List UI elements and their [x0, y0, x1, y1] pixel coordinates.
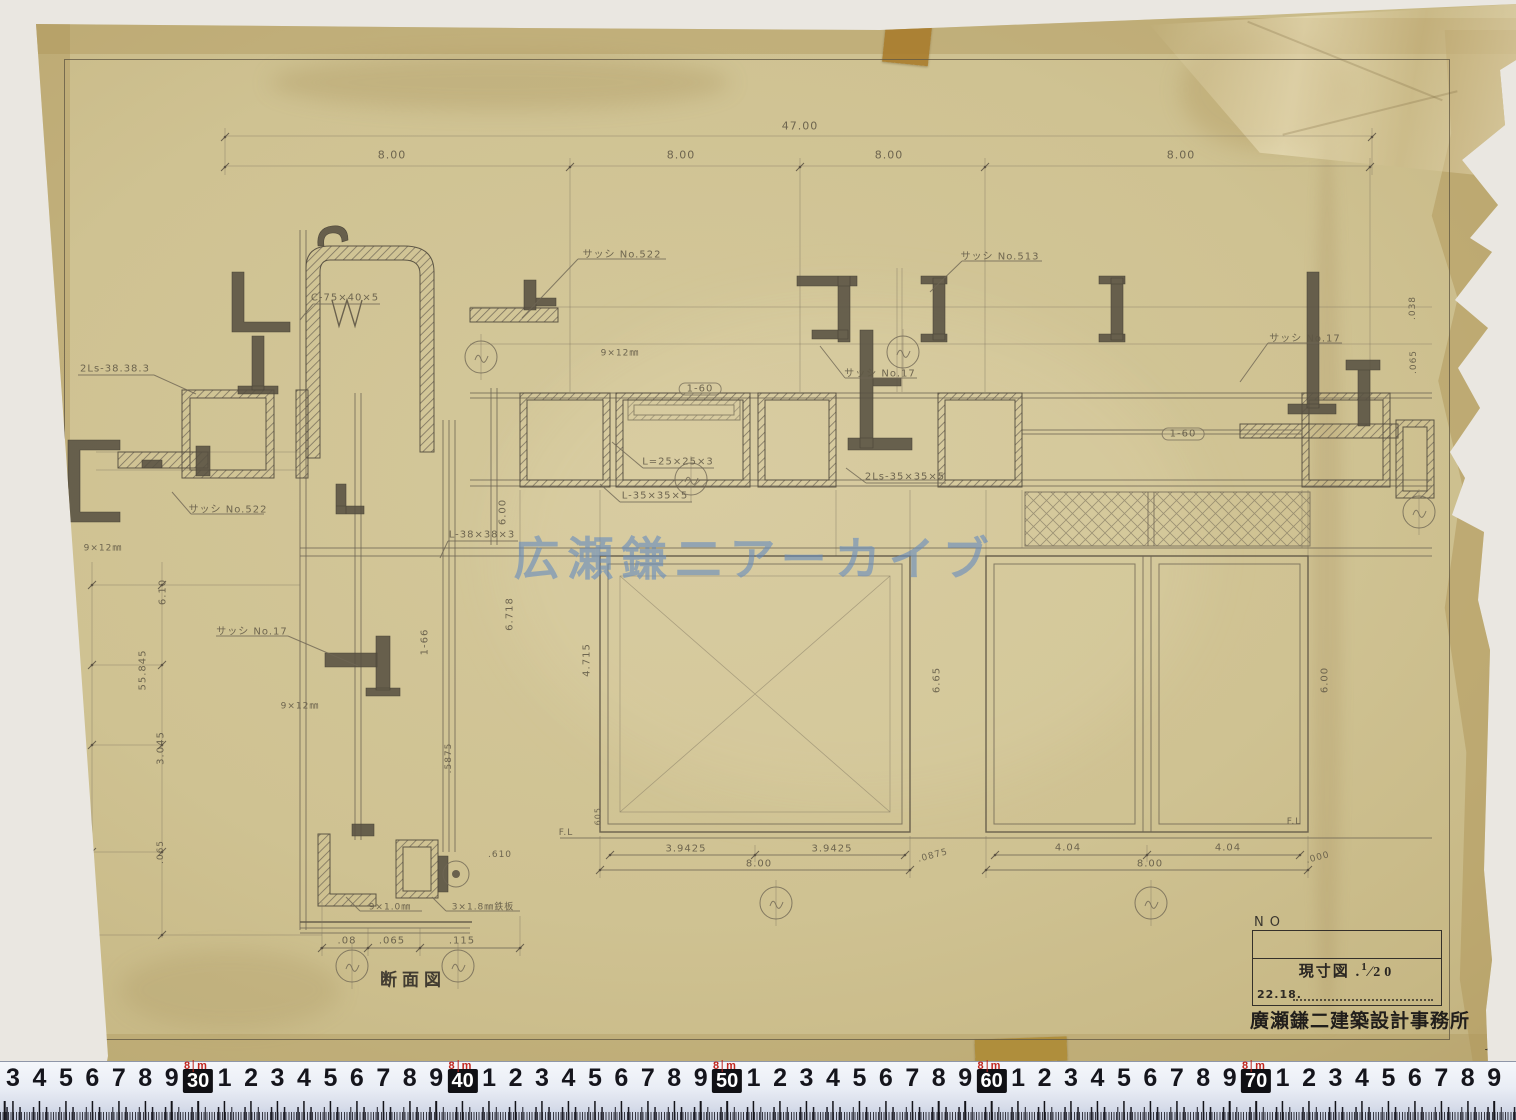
annotation-label: 8.00: [746, 859, 772, 870]
ruler-digit: 2: [773, 1064, 787, 1093]
ruler-meter-label: 8m: [977, 1061, 1000, 1071]
ruler-meter-label: 8m: [184, 1061, 207, 1071]
ruler-digit: 9: [165, 1064, 179, 1093]
crosshatch-screen: [1025, 492, 1310, 546]
section-mark: [465, 334, 497, 380]
ruler-digit: 9: [694, 1064, 708, 1093]
ruler-digit: 1: [218, 1064, 232, 1093]
annotation-label: 47.00: [782, 120, 819, 133]
ruler-digit: 5: [59, 1064, 73, 1093]
ruler-digit: 4: [1090, 1064, 1104, 1093]
ruler-digit: 1: [1276, 1064, 1290, 1093]
title-block: 現寸図 .1⁄20 22.18.: [1252, 930, 1442, 1006]
section-mark: [760, 880, 792, 926]
annotation-label: .5875: [444, 743, 454, 774]
annotation-label: C-75×40×5: [311, 293, 379, 304]
annotation-label: 1-60: [679, 383, 722, 396]
ruler-digit: 3: [6, 1064, 20, 1093]
ruler-digit: 5: [852, 1064, 866, 1093]
annotation-label: 9×12㎜: [601, 346, 640, 359]
ruler-decimeter-box: 708m: [1241, 1069, 1271, 1093]
ruler-decimeter-box: 308m: [183, 1069, 213, 1093]
ruler-meter-label: 8m: [448, 1061, 471, 1071]
section-mark: [1135, 880, 1167, 926]
archive-watermark: 広瀬鎌二アーカイブ: [513, 523, 996, 589]
annotation-label: 9×12㎜: [84, 541, 123, 554]
annotation-label: F.L: [1287, 817, 1302, 827]
annotation-label: 6.00: [1320, 667, 1331, 693]
ruler-digit: 4: [561, 1064, 575, 1093]
ruler-digit: 5: [323, 1064, 337, 1093]
annotation-label: 55.845: [138, 650, 149, 691]
ruler-digit: 8: [667, 1064, 681, 1093]
annotation-label: L-35×35×5: [622, 491, 689, 502]
annotation-label: 6.00: [498, 499, 509, 525]
annotation-label: 3.9425: [812, 844, 853, 855]
ruler-digit: 3: [1329, 1064, 1343, 1093]
annotation-label: サッシ No.513: [961, 248, 1040, 263]
ruler-digit: 6: [350, 1064, 364, 1093]
ruler-digit: 4: [32, 1064, 46, 1093]
annotation-label: サッシ No.17: [216, 623, 288, 638]
ruler-digit: 7: [112, 1064, 126, 1093]
ruler-digit: 2: [1302, 1064, 1316, 1093]
ruler-decimeter-box: 608m: [977, 1069, 1007, 1093]
ruler-digit: 5: [1117, 1064, 1131, 1093]
ruler-digit: 1: [747, 1064, 761, 1093]
annotation-label: 9×12㎜: [281, 699, 320, 712]
annotation-label: 9×1.0㎜: [369, 900, 412, 913]
ruler-digit: 7: [376, 1064, 390, 1093]
ruler-digit: 8: [932, 1064, 946, 1093]
blueprint-sheet: 広瀬鎌二アーカイブ 47.008.008.008.008.00サッシ No.52…: [0, 0, 1516, 1120]
tape-measure-ruler: 3456789308m123456789408m123456789508m123…: [0, 1061, 1516, 1120]
annotation-label: 8.00: [1137, 859, 1163, 870]
title-block-no-label: NO: [1254, 915, 1286, 930]
ruler-digit: 1: [482, 1064, 496, 1093]
annotation-label: 6.718: [505, 597, 516, 631]
ruler-digit: 7: [905, 1064, 919, 1093]
ruler-decimeter-box: 508m: [712, 1069, 742, 1093]
annotation-label: L=25×25×3: [642, 457, 714, 468]
ruler-digit: 7: [641, 1064, 655, 1093]
annotation-label: .115: [449, 936, 475, 947]
title-block-scale: 現寸図 .1⁄20: [1253, 960, 1441, 988]
annotation-label: F.L: [559, 828, 574, 838]
ruler-digit: 8: [1461, 1064, 1475, 1093]
ruler-digit: 4: [297, 1064, 311, 1093]
ruler-digit: 8: [403, 1064, 417, 1093]
annotation-label: 1-60: [1162, 428, 1205, 441]
annotation-label: 4.04: [1055, 843, 1081, 854]
ruler-digit: 4: [826, 1064, 840, 1093]
ruler-digit: 9: [429, 1064, 443, 1093]
section-mark: [442, 943, 474, 989]
title-block-empty-row: [1253, 931, 1441, 959]
annotation-label: サッシ No.522: [583, 246, 662, 261]
elevation-panels: [600, 556, 1308, 832]
ruler-digit: 3: [800, 1064, 814, 1093]
scale-denominator: 20: [1373, 965, 1395, 980]
ruler-digit: 3: [271, 1064, 285, 1093]
ruler-digit: 4: [1355, 1064, 1369, 1093]
ruler-digit: 6: [1143, 1064, 1157, 1093]
annotation-label: 8.00: [378, 149, 407, 162]
annotation-label: サッシ No.17: [1269, 330, 1341, 345]
title-block-dotted-line: [1293, 999, 1433, 1001]
ruler-digit: 1: [1011, 1064, 1025, 1093]
ruler-decimeter-box: 408m: [448, 1069, 478, 1093]
annotation-label: 3×1.8㎜鉄板: [452, 900, 515, 913]
ruler-meter-label: 8m: [1242, 1061, 1265, 1071]
annotation-label: 6.10: [158, 579, 169, 605]
ruler-digit: 6: [85, 1064, 99, 1093]
ruler-digit: 9: [1223, 1064, 1237, 1093]
scale-label: 現寸図 .: [1299, 964, 1362, 980]
annotation-label: サッシ No.522: [189, 501, 268, 516]
ruler-ticks: [0, 1100, 1516, 1120]
office-name-stamp: 廣瀬鎌二建築設計事務所: [1250, 1006, 1444, 1033]
annotation-label: 3.9425: [666, 844, 707, 855]
ruler-digit: 9: [1487, 1064, 1501, 1093]
ruler-digit: 3: [535, 1064, 549, 1093]
section-mark: [336, 943, 368, 989]
annotation-label: 1-66: [420, 629, 431, 656]
annotation-label: 断面図: [380, 966, 446, 991]
annotation-label: 8.00: [667, 149, 696, 162]
annotation-label: 2Ls-35×35×5: [865, 472, 945, 483]
ruler-digit: 5: [1381, 1064, 1395, 1093]
ruler-digit: 6: [1408, 1064, 1422, 1093]
annotation-label: .065: [379, 936, 405, 947]
annotation-label: 6.65: [932, 667, 943, 693]
ruler-digit: 3: [1064, 1064, 1078, 1093]
ruler-digit: 7: [1170, 1064, 1184, 1093]
ruler-digit: 2: [509, 1064, 523, 1093]
annotation-label: 8.00: [1167, 149, 1196, 162]
scanned-blueprint-page: 広瀬鎌二アーカイブ 47.008.008.008.008.00サッシ No.52…: [0, 0, 1516, 1120]
ruler-digit: 8: [138, 1064, 152, 1093]
scale-numerator: 1: [1361, 961, 1369, 973]
annotation-label: サッシ No.17: [844, 365, 916, 380]
ruler-digit: 6: [614, 1064, 628, 1093]
ruler-digit: 7: [1434, 1064, 1448, 1093]
annotation-label: .08: [338, 936, 357, 947]
annotation-label: 2Ls-38.38.3: [80, 364, 150, 375]
annotation-label: .605: [594, 807, 603, 829]
ruler-digit: 6: [879, 1064, 893, 1093]
annotation-label: .610: [488, 850, 512, 860]
annotation-label: .038: [1408, 296, 1418, 320]
annotation-label: L-38×38×3: [449, 530, 516, 541]
ruler-digit: 5: [588, 1064, 602, 1093]
ruler-digit: 2: [1038, 1064, 1052, 1093]
annotation-label: 8.00: [875, 149, 904, 162]
ruler-digit: 2: [244, 1064, 258, 1093]
ruler-digit: 8: [1196, 1064, 1210, 1093]
ruler-digit: 9: [958, 1064, 972, 1093]
annotation-label: .065: [1409, 350, 1419, 374]
annotation-label: .065: [156, 840, 166, 864]
ruler-meter-label: 8m: [713, 1061, 736, 1071]
annotation-label: 4.715: [582, 643, 593, 677]
annotation-label: 4.04: [1215, 843, 1241, 854]
annotation-label: 3.045: [156, 731, 167, 765]
